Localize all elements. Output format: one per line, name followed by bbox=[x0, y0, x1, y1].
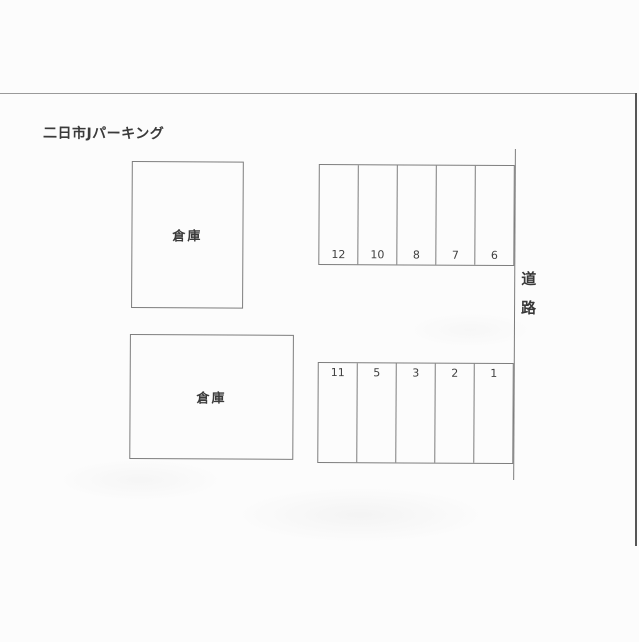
parking-space-number: 11 bbox=[331, 363, 345, 382]
parking-space-number: 7 bbox=[452, 246, 459, 265]
parking-space-number: 5 bbox=[373, 363, 380, 382]
parking-space: 3 bbox=[396, 363, 436, 462]
warehouse-label: 倉庫 bbox=[172, 225, 202, 244]
parking-space: 5 bbox=[357, 363, 397, 462]
parking-layout-diagram: 二日市Jパーキング 倉庫 倉庫 12 10 8 7 6 11 5 3 bbox=[0, 0, 639, 642]
road-label: 道 路 bbox=[521, 271, 536, 316]
parking-space-number: 10 bbox=[370, 245, 384, 264]
parking-space-number: 12 bbox=[331, 245, 345, 264]
parking-space: 11 bbox=[318, 363, 358, 462]
parking-space: 7 bbox=[436, 166, 476, 265]
parking-space-number: 6 bbox=[491, 246, 498, 265]
road-label-char: 道 bbox=[521, 271, 536, 287]
parking-space: 8 bbox=[397, 165, 437, 264]
warehouse-label: 倉庫 bbox=[197, 387, 227, 406]
parking-space-number: 2 bbox=[451, 364, 458, 383]
warehouse-box-1: 倉庫 bbox=[131, 161, 244, 309]
map-title: 二日市Jパーキング bbox=[43, 125, 164, 144]
parking-space-number: 8 bbox=[413, 245, 420, 264]
scanned-parking-map: { "page": { "title": "二日市Jパーキング" }, "war… bbox=[0, 0, 639, 640]
parking-space-number: 3 bbox=[412, 363, 419, 382]
parking-space: 6 bbox=[475, 166, 514, 265]
parking-space: 12 bbox=[319, 165, 359, 264]
parking-row-top: 12 10 8 7 6 bbox=[318, 164, 515, 266]
warehouse-box-2: 倉庫 bbox=[129, 334, 294, 460]
parking-row-bottom: 11 5 3 2 1 bbox=[317, 362, 514, 464]
parking-space: 2 bbox=[435, 364, 475, 463]
parking-space: 1 bbox=[474, 364, 513, 463]
parking-space: 10 bbox=[358, 165, 398, 264]
road-label-char: 路 bbox=[521, 300, 536, 316]
parking-space-number: 1 bbox=[490, 364, 497, 383]
